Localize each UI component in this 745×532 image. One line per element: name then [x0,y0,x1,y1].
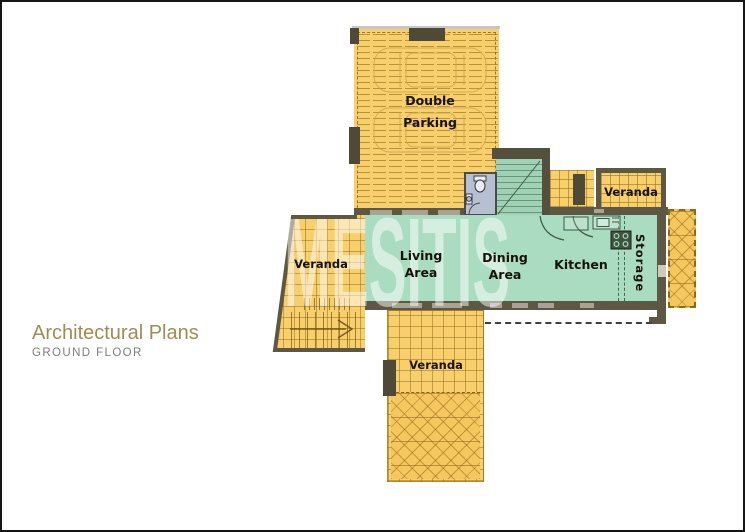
storage-partition-dash [624,216,625,301]
wc-room [464,172,497,216]
wall-segment [573,174,585,205]
label-living: Living Area [396,247,446,281]
floor-plan-canvas: MESITIS Double Parking Living Area Dinin… [0,0,745,532]
wall-segment [383,360,396,396]
wall-segment [350,28,359,44]
label-dining: Dining Area [479,249,531,283]
veranda-left-floor [272,215,365,351]
canopy-dashed-line [485,308,652,324]
wall-segment [349,127,360,164]
storage-partition-dash [618,216,619,301]
page-subtitle: GROUND FLOOR [32,347,143,359]
storage-door-gap [658,265,666,277]
label-veranda-bottom: Veranda [402,358,470,372]
wall-segment [409,28,445,41]
label-kitchen: Kitchen [550,256,612,273]
veranda-right-strip [668,209,696,308]
label-veranda-left: Veranda [293,257,349,271]
veranda-bottom-hatch [391,392,480,479]
veranda-left-stairs [300,298,350,310]
window-glass [392,303,422,308]
veranda-left-stairs [284,312,362,349]
wall-segment [542,148,550,216]
wall-segment [550,207,668,215]
label-parking: Double Parking [398,90,462,134]
window-glass [594,209,604,213]
window-glass [432,303,462,308]
label-veranda-top-right: Veranda [598,185,664,199]
page-title: Architectural Plans [32,322,199,345]
staircase [496,159,542,216]
label-storage: Storage [633,234,647,300]
